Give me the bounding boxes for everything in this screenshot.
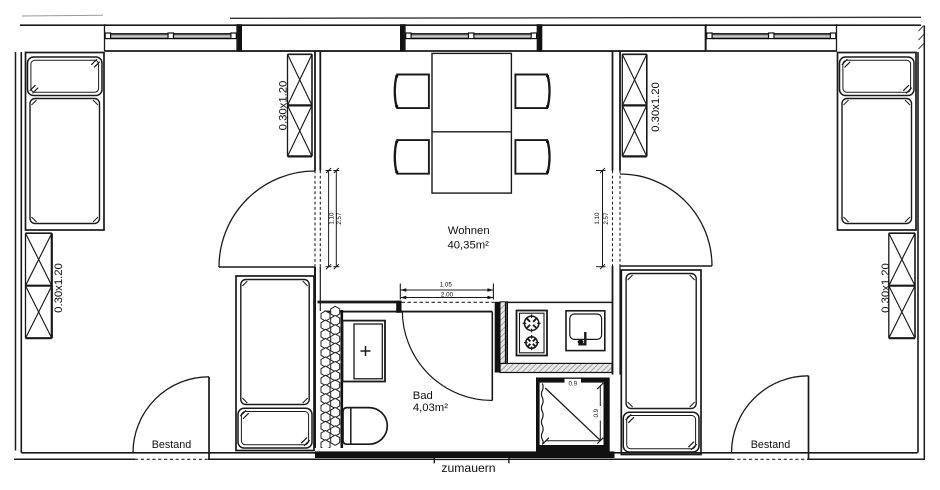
- svg-text:2.57: 2.57: [336, 212, 343, 225]
- svg-text:2.00: 2.00: [441, 292, 454, 299]
- svg-text:Bad: Bad: [413, 390, 433, 402]
- svg-text:4,03m²: 4,03m²: [413, 402, 448, 414]
- svg-text:Wohnen: Wohnen: [448, 225, 490, 237]
- svg-text:0.30x1.20: 0.30x1.20: [277, 81, 289, 131]
- svg-text:1.10: 1.10: [329, 212, 336, 225]
- svg-text:zumauern: zumauern: [441, 461, 495, 475]
- svg-text:1.05: 1.05: [440, 282, 453, 289]
- svg-text:0.30x1.20: 0.30x1.20: [53, 263, 65, 313]
- svg-text:0.30x1.20: 0.30x1.20: [880, 263, 892, 313]
- svg-text:1.10: 1.10: [594, 212, 601, 225]
- svg-text:0.9: 0.9: [593, 408, 600, 417]
- svg-text:40,35m²: 40,35m²: [447, 239, 489, 251]
- svg-text:2.57: 2.57: [603, 212, 610, 225]
- svg-text:0.9: 0.9: [568, 380, 577, 387]
- svg-text:0.30x1.20: 0.30x1.20: [650, 82, 662, 132]
- svg-text:Bestand: Bestand: [751, 439, 791, 451]
- svg-text:Bestand: Bestand: [152, 439, 192, 451]
